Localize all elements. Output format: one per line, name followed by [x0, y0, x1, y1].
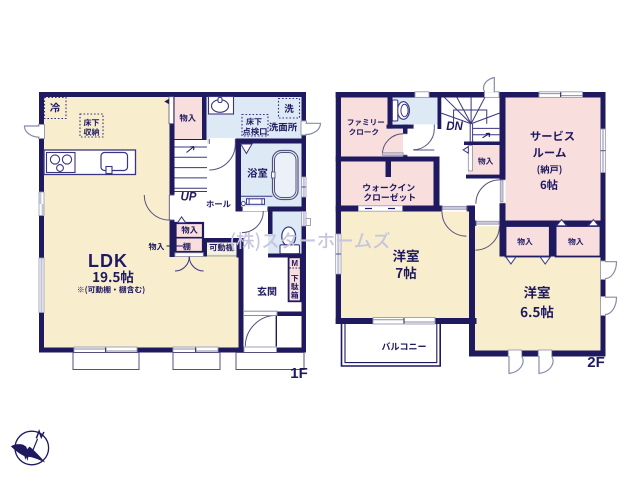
svg-text:2F: 2F — [587, 354, 605, 371]
svg-text:DN: DN — [446, 121, 463, 133]
svg-text:M: M — [291, 259, 298, 268]
svg-text:1F: 1F — [290, 365, 308, 382]
svg-text:UP: UP — [181, 192, 197, 204]
svg-text:LDK: LDK — [88, 251, 128, 271]
